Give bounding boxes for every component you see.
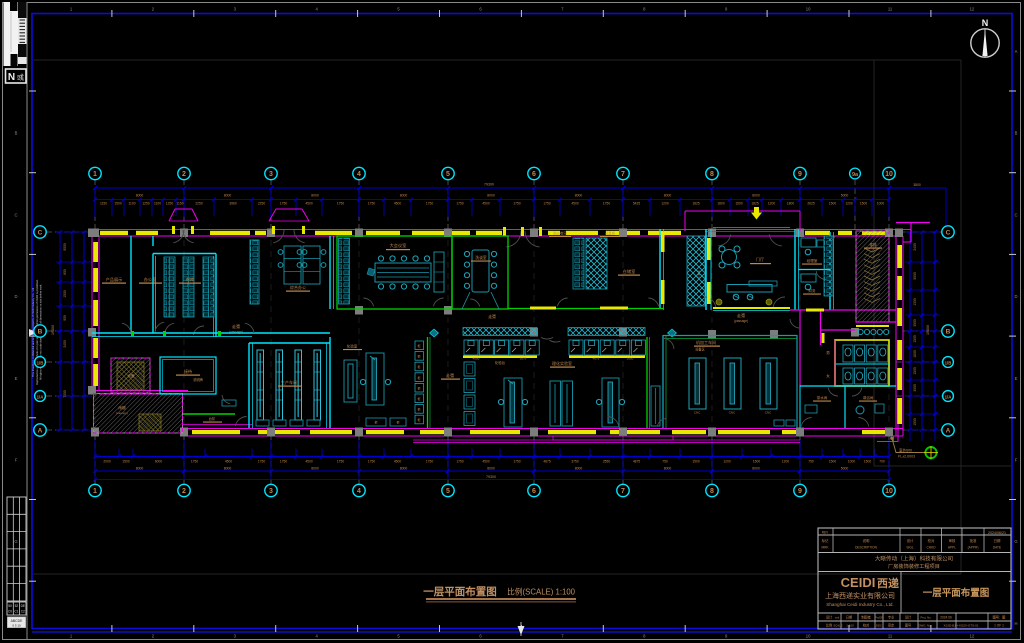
svg-text:DESCRIPTION: DESCRIPTION [855, 546, 877, 550]
svg-text:大晰传动（上海）科技有限公司: 大晰传动（上海）科技有限公司 [875, 555, 953, 563]
svg-text:楼梯: 楼梯 [869, 242, 877, 247]
svg-text:1800: 1800 [717, 201, 725, 205]
svg-text:1200: 1200 [768, 201, 776, 205]
svg-text:8000: 8000 [224, 193, 232, 197]
svg-text:比例: 比例 [826, 623, 832, 628]
svg-text:一层平面布置图: 一层平面布置图 [923, 587, 990, 599]
svg-text:比例(SCALE) 1:100: 比例(SCALE) 1:100 [507, 587, 576, 597]
svg-text:Proj. No.: Proj. No. [921, 616, 932, 620]
svg-text:1300: 1300 [913, 298, 917, 306]
svg-text:A: A [1015, 49, 1018, 54]
svg-text:3: 3 [269, 171, 273, 178]
svg-text:ProDE: ProDE [875, 616, 883, 620]
svg-text:批准: 批准 [970, 538, 977, 543]
svg-text:综合办公: 综合办公 [290, 284, 306, 290]
svg-text:1800: 1800 [913, 350, 917, 358]
svg-text:900: 900 [63, 315, 67, 321]
svg-text:8000: 8000 [752, 467, 760, 471]
svg-text:A: A [946, 427, 951, 434]
svg-text:1500: 1500 [913, 367, 917, 375]
svg-text:12: 12 [970, 634, 975, 639]
svg-text:1500: 1500 [63, 290, 67, 298]
svg-text:DATE: DATE [993, 546, 1001, 550]
svg-text:3750: 3750 [571, 459, 579, 463]
svg-text:1/B: 1/B [945, 360, 952, 365]
svg-text:1500: 1500 [114, 201, 122, 205]
svg-text:12: 12 [970, 7, 975, 12]
svg-text:1500: 1500 [860, 201, 868, 205]
svg-text:52: 52 [15, 604, 19, 608]
svg-text:2000: 2000 [103, 459, 111, 463]
svg-text:1500: 1500 [913, 335, 917, 343]
svg-text:10: 10 [885, 488, 893, 495]
svg-text:6000: 6000 [155, 459, 163, 463]
svg-text:0 5 10: 0 5 10 [12, 623, 21, 627]
svg-text:F: F [15, 458, 18, 463]
svg-text:1:100: 1:100 [846, 624, 854, 628]
svg-text:1500: 1500 [692, 459, 700, 463]
svg-text:标记: 标记 [822, 538, 829, 543]
svg-text:淋浴间: 淋浴间 [863, 395, 874, 400]
svg-text:2024.06: 2024.06 [940, 616, 952, 620]
svg-text:1000: 1000 [848, 459, 856, 463]
svg-text:柜: 柜 [396, 420, 399, 425]
svg-text:1500: 1500 [753, 459, 761, 463]
svg-text:N: N [982, 18, 989, 28]
svg-text:1500: 1500 [913, 418, 917, 426]
svg-text:1250: 1250 [166, 201, 174, 205]
svg-text:1750: 1750 [337, 201, 345, 205]
svg-text:CNC: CNC [729, 411, 736, 415]
svg-text:彧: 彧 [17, 73, 24, 82]
svg-text:4500: 4500 [482, 201, 490, 205]
svg-text:unit: unit [835, 616, 840, 620]
svg-text:一层平面布置图: 一层平面布置图 [423, 585, 497, 598]
svg-text:1: 1 [93, 488, 97, 495]
svg-text:说明牌: 说明牌 [193, 377, 203, 382]
svg-text:MRK: MRK [821, 546, 829, 550]
svg-text:3: 3 [269, 488, 273, 495]
svg-text:1750: 1750 [513, 201, 521, 205]
svg-text:2550: 2550 [603, 459, 611, 463]
svg-text:1100: 1100 [128, 201, 135, 205]
svg-text:8000: 8000 [400, 467, 408, 471]
svg-text:1750: 1750 [543, 201, 551, 205]
svg-text:1150: 1150 [176, 201, 183, 205]
svg-text:5425: 5425 [633, 201, 641, 205]
svg-text:化验室: 化验室 [347, 344, 358, 349]
svg-text:B: B [1015, 131, 1018, 136]
svg-text:1200: 1200 [845, 201, 853, 205]
svg-text:8000: 8000 [136, 467, 144, 471]
svg-text:防火卷帘: 防火卷帘 [553, 231, 567, 236]
svg-text:B: B [946, 328, 951, 335]
svg-text:CNC: CNC [694, 411, 701, 415]
svg-text:2400: 2400 [913, 243, 917, 251]
svg-text:3050: 3050 [627, 357, 634, 361]
svg-text:室外600: 室外600 [899, 447, 912, 452]
svg-text:柜: 柜 [417, 354, 420, 359]
svg-text:5000: 5000 [841, 193, 849, 197]
svg-text:E: E [15, 376, 18, 381]
svg-text:柜: 柜 [417, 343, 420, 348]
svg-text:8000: 8000 [664, 467, 672, 471]
svg-text:8000: 8000 [400, 193, 408, 197]
svg-text:B: B [38, 328, 43, 335]
svg-text:A: A [38, 427, 43, 434]
svg-text:APPL: APPL [948, 546, 956, 550]
svg-text:6: 6 [532, 171, 536, 178]
svg-text:财务: 财务 [808, 288, 816, 293]
svg-text:5000: 5000 [913, 272, 917, 280]
svg-text:4050: 4050 [473, 357, 480, 361]
svg-text:柜: 柜 [417, 385, 420, 390]
svg-text:1750: 1750 [191, 459, 199, 463]
svg-text:产品展示: 产品展示 [106, 276, 123, 283]
svg-text:制图者: 制图者 [861, 615, 871, 620]
svg-text:(APPR): (APPR) [968, 546, 979, 550]
svg-text:1500: 1500 [829, 459, 837, 463]
svg-text:8000: 8000 [136, 193, 144, 197]
svg-text:生产车间: 生产车间 [281, 379, 297, 385]
svg-text:柜: 柜 [374, 420, 377, 425]
svg-text:1500: 1500 [864, 459, 872, 463]
svg-text:1750: 1750 [368, 459, 376, 463]
svg-text:仓储室: 仓储室 [623, 268, 636, 275]
svg-text:设计: 设计 [905, 615, 912, 620]
svg-text:3800: 3800 [913, 183, 921, 187]
svg-text:1825: 1825 [751, 201, 759, 205]
svg-text:2250: 2250 [195, 201, 203, 205]
svg-text:T.B.E: T.B.E [697, 269, 701, 278]
svg-text:西递: 西递 [877, 576, 899, 590]
svg-text:3960: 3960 [229, 201, 237, 205]
svg-text:雨棚: 雨棚 [118, 405, 126, 410]
svg-text:8: 8 [710, 171, 714, 178]
svg-text:门厅: 门厅 [756, 256, 764, 263]
svg-text:Shanghai Ceidi Industry Co., L: Shanghai Ceidi Industry Co., Ltd. [826, 602, 893, 607]
svg-text:G: G [14, 539, 17, 544]
svg-text:柜: 柜 [417, 364, 420, 369]
svg-text:2: 2 [182, 488, 186, 495]
svg-text:1: 1 [93, 171, 97, 178]
svg-text:10: 10 [806, 634, 811, 639]
svg-text:走彋: 走彋 [737, 312, 745, 318]
svg-text:(passage): (passage) [734, 319, 748, 323]
svg-text:1750: 1750 [258, 459, 266, 463]
svg-text:8000: 8000 [311, 467, 319, 471]
svg-text:经理室: 经理室 [807, 258, 818, 263]
svg-text:1500: 1500 [829, 201, 837, 205]
svg-text:6: 6 [532, 488, 536, 495]
svg-text:700: 700 [879, 459, 885, 463]
svg-text:C: C [14, 212, 17, 217]
svg-text:柜: 柜 [417, 407, 420, 412]
svg-text:日期: 日期 [846, 615, 852, 620]
svg-text:11: 11 [888, 634, 893, 639]
svg-text:审定: 审定 [888, 623, 895, 628]
svg-text:C: C [946, 229, 951, 236]
svg-text:茶水间: 茶水间 [817, 395, 828, 400]
svg-text:1750: 1750 [426, 201, 434, 205]
svg-text:4500: 4500 [305, 201, 313, 205]
svg-text:7: 7 [621, 488, 625, 495]
svg-text:1750: 1750 [280, 459, 288, 463]
svg-text:接待: 接待 [184, 368, 192, 374]
svg-text:1750: 1750 [426, 459, 434, 463]
svg-text:2625: 2625 [807, 201, 815, 205]
svg-text:G: G [1014, 539, 1017, 544]
svg-text:8000: 8000 [575, 193, 583, 197]
svg-text:1200: 1200 [782, 459, 790, 463]
svg-text:C: C [1014, 212, 1017, 217]
svg-text:CHKD: CHKD [926, 546, 936, 550]
svg-text:5: 5 [446, 488, 450, 495]
svg-text:1500: 1500 [122, 459, 130, 463]
svg-text:DEC: DEC [876, 624, 882, 628]
svg-text:4500: 4500 [482, 459, 490, 463]
svg-text:2250: 2250 [258, 201, 266, 205]
svg-text:1100: 1100 [154, 201, 161, 205]
svg-text:1/A: 1/A [945, 394, 953, 399]
svg-text:柜: 柜 [417, 375, 420, 380]
svg-text:校对: 校对 [928, 538, 935, 543]
svg-text:SIGL: SIGL [906, 546, 913, 550]
svg-text:CEIDI: CEIDI [841, 575, 876, 590]
svg-text:8000: 8000 [487, 193, 495, 197]
svg-text:1200: 1200 [723, 459, 731, 463]
svg-text:理化实验室: 理化实验室 [552, 360, 572, 366]
svg-text:8: 8 [710, 488, 714, 495]
svg-text:10: 10 [806, 7, 811, 12]
svg-text:1/A: 1/A [37, 394, 45, 399]
svg-text:大会议室: 大会议室 [390, 242, 407, 249]
svg-text:8000: 8000 [487, 467, 495, 471]
svg-text:专业: 专业 [888, 615, 894, 620]
svg-text:D: D [1014, 294, 1017, 299]
svg-text:8000: 8000 [664, 193, 672, 197]
svg-text:9a: 9a [852, 172, 859, 178]
svg-text:洗谈室: 洗谈室 [475, 255, 487, 260]
svg-text:8000: 8000 [224, 467, 232, 471]
svg-text:女: 女 [826, 373, 830, 378]
svg-text:11: 11 [888, 7, 893, 12]
svg-text:1750: 1750 [456, 201, 464, 205]
svg-text:设备区: 设备区 [695, 347, 705, 352]
svg-text:5: 5 [446, 171, 450, 178]
svg-text:2024/06/21: 2024/06/21 [988, 531, 1006, 535]
svg-text:4875: 4875 [633, 459, 641, 463]
svg-text:CNC: CNC [765, 411, 772, 415]
svg-text:79300: 79300 [486, 475, 496, 479]
svg-text:8000: 8000 [752, 193, 760, 197]
svg-text:机加工车间: 机加工车间 [696, 339, 716, 345]
svg-text:H: H [1014, 621, 1017, 626]
svg-text:走彋: 走彋 [232, 323, 240, 329]
svg-text:玩具柜: 玩具柜 [605, 231, 616, 236]
svg-text:4500: 4500 [394, 459, 402, 463]
svg-text:1750: 1750 [513, 459, 521, 463]
svg-text:8000: 8000 [311, 193, 319, 197]
svg-text:台阶: 台阶 [209, 416, 216, 421]
svg-text:仓库: 仓库 [186, 276, 194, 283]
svg-text:5000: 5000 [841, 467, 849, 471]
svg-text:1750: 1750 [337, 459, 345, 463]
svg-text:N: N [8, 72, 15, 83]
svg-text:19800: 19800 [51, 325, 55, 335]
svg-text:校对: 校对 [863, 623, 870, 628]
svg-text:设计: 设计 [826, 615, 833, 620]
svg-text:1500: 1500 [735, 201, 743, 205]
svg-text:79300: 79300 [484, 183, 494, 187]
svg-text:1750: 1750 [456, 459, 464, 463]
svg-text:1750: 1750 [368, 201, 376, 205]
svg-text:600: 600 [63, 269, 67, 275]
svg-text:说明: 说明 [863, 538, 870, 543]
svg-text:设计: 设计 [907, 538, 914, 543]
svg-text:1/B: 1/B [37, 360, 44, 365]
svg-text:办公室: 办公室 [144, 276, 157, 283]
svg-text:SCALE: SCALE [833, 624, 842, 628]
svg-text:走彋: 走彋 [488, 314, 496, 319]
svg-text:C: C [38, 229, 43, 236]
svg-text:B: B [15, 131, 18, 136]
svg-text:1250: 1250 [142, 201, 150, 205]
svg-text:FL±2,0003: FL±2,0003 [898, 454, 915, 458]
svg-text:4500: 4500 [225, 459, 233, 463]
svg-text:D: D [14, 294, 17, 299]
svg-text:1200: 1200 [661, 201, 669, 205]
svg-text:4: 4 [357, 488, 361, 495]
svg-text:图号：图: 图号：图 [993, 615, 1006, 620]
svg-text:50: 50 [8, 604, 12, 608]
svg-text:9: 9 [798, 488, 802, 495]
svg-text:3000: 3000 [913, 384, 917, 392]
svg-text:走彋: 走彋 [446, 372, 454, 378]
svg-text:3000: 3000 [913, 319, 917, 327]
svg-text:(canopy): (canopy) [116, 411, 128, 415]
svg-text:4500: 4500 [571, 201, 579, 205]
svg-text:7: 7 [621, 171, 625, 178]
svg-text:3075: 3075 [520, 357, 527, 361]
svg-text:9: 9 [798, 171, 802, 178]
svg-text:1000: 1000 [877, 201, 885, 205]
svg-text:10: 10 [885, 171, 893, 178]
svg-text:4500: 4500 [305, 459, 313, 463]
svg-text:男: 男 [826, 350, 830, 355]
svg-text:DWG. No.: DWG. No. [919, 624, 932, 628]
svg-text:日期: 日期 [994, 538, 1001, 543]
svg-text:审核: 审核 [949, 538, 956, 543]
svg-text:2400: 2400 [63, 340, 67, 348]
svg-text:E: E [1015, 376, 1018, 381]
svg-text:4: 4 [357, 171, 361, 178]
svg-text:1800: 1800 [787, 201, 795, 205]
svg-text:REV: REV [822, 531, 829, 535]
svg-text:C2: C2 [21, 610, 25, 614]
svg-text:柜: 柜 [417, 417, 420, 422]
svg-text:设备: 设备 [127, 373, 135, 378]
svg-text:1750: 1750 [603, 201, 611, 205]
svg-text:7300: 7300 [63, 390, 67, 398]
svg-text:C0: C0 [8, 610, 12, 614]
svg-text:1150: 1150 [100, 201, 107, 205]
svg-text:4075: 4075 [593, 357, 600, 361]
svg-text:XSJD-BJH-XGZX-GTS-01: XSJD-BJH-XGZX-GTS-01 [943, 624, 978, 628]
svg-text:1 OF 1: 1 OF 1 [994, 624, 1004, 628]
svg-text:1750: 1750 [280, 201, 288, 205]
svg-text:F: F [1015, 458, 1018, 463]
svg-text:DE: DE [21, 604, 25, 608]
svg-text:750: 750 [808, 459, 814, 463]
svg-text:4500: 4500 [394, 201, 402, 205]
svg-text:C1: C1 [14, 610, 18, 614]
svg-text:4875: 4875 [543, 459, 551, 463]
svg-text:1825: 1825 [692, 201, 700, 205]
svg-text:8000: 8000 [575, 467, 583, 471]
svg-text:图号: 图号 [905, 623, 911, 628]
svg-text:上海西递实业有限公司: 上海西递实业有限公司 [825, 591, 895, 600]
svg-text:柜: 柜 [417, 396, 420, 401]
svg-text:19800: 19800 [926, 325, 930, 335]
svg-text:厂房装饰装修工程项目: 厂房装饰装修工程项目 [888, 562, 940, 570]
svg-text:化验台: 化验台 [495, 360, 506, 365]
svg-text:2: 2 [182, 171, 186, 178]
svg-text:750: 750 [662, 459, 668, 463]
svg-text:9000: 9000 [63, 243, 67, 251]
